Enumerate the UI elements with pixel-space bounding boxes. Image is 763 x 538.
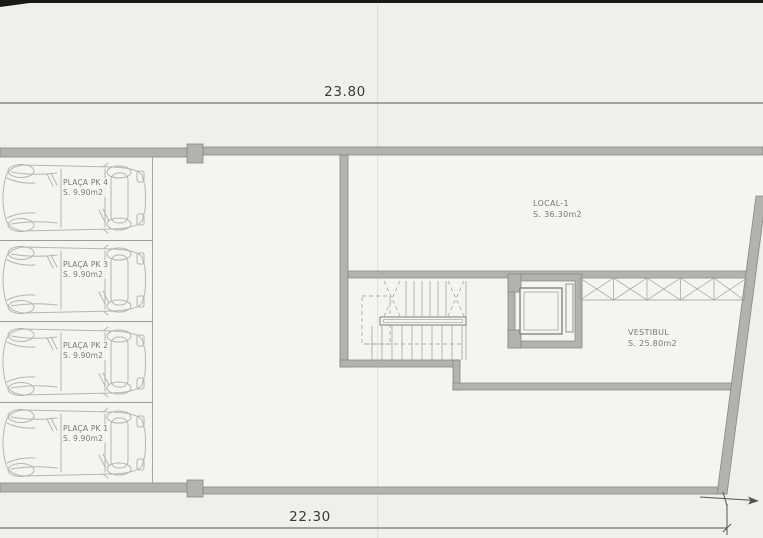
elevator-jamb-bottom bbox=[508, 330, 521, 348]
partition-wall bbox=[340, 155, 348, 367]
stall-name: PLAÇA PK 3 bbox=[63, 260, 108, 270]
floor-plan-drawing bbox=[0, 0, 763, 538]
parking-stall-label-pk3: PLAÇA PK 3 S. 9.90m2 bbox=[62, 260, 109, 279]
top-wall-right bbox=[203, 147, 763, 155]
stall-area: S. 9.90m2 bbox=[63, 188, 108, 198]
elevator-door-slot bbox=[566, 284, 573, 332]
stall-name: PLAÇA PK 1 bbox=[63, 424, 108, 434]
room-label-vestibul: VESTIBUL S. 25.80m2 bbox=[628, 328, 677, 349]
stall-name: PLAÇA PK 4 bbox=[63, 178, 108, 188]
room-name: LOCAL-1 bbox=[533, 199, 582, 210]
stair-south-wall bbox=[340, 360, 460, 367]
parking-stall-label-pk1: PLAÇA PK 1 S. 9.90m2 bbox=[62, 424, 109, 443]
bottom-wall-column bbox=[187, 480, 203, 497]
top-wall-column bbox=[187, 144, 203, 163]
vestibule-south-wall bbox=[453, 383, 732, 390]
dimension-top-label: 23.80 bbox=[280, 84, 410, 100]
top-wall-left bbox=[0, 148, 188, 157]
room-name: VESTIBUL bbox=[628, 328, 677, 339]
stair-handrail bbox=[380, 317, 466, 325]
elevator-jamb-top bbox=[508, 274, 521, 292]
dimension-bottom-label: 22.30 bbox=[250, 509, 370, 525]
bottom-wall-left bbox=[0, 483, 188, 492]
stall-area: S. 9.90m2 bbox=[63, 351, 108, 361]
bottom-wall-right bbox=[203, 487, 727, 494]
floor-plan-sheet: 23.80 PLAÇA PK 4 S. 9.90m2 PLAÇA PK 3 S.… bbox=[0, 0, 763, 538]
room-area: S. 36.30m2 bbox=[533, 210, 582, 221]
stall-area: S. 9.90m2 bbox=[63, 270, 108, 280]
room-label-local-1: LOCAL-1 S. 36.30m2 bbox=[533, 199, 582, 220]
parking-stall-label-pk2: PLAÇA PK 2 S. 9.90m2 bbox=[62, 341, 109, 360]
room-area: S. 25.80m2 bbox=[628, 339, 677, 350]
stall-area: S. 9.90m2 bbox=[63, 434, 108, 444]
stall-name: PLAÇA PK 2 bbox=[63, 341, 108, 351]
dimension-bottom-line bbox=[0, 492, 759, 535]
parking-stall-label-pk4: PLAÇA PK 4 S. 9.90m2 bbox=[62, 178, 109, 197]
elevator-car bbox=[520, 288, 562, 334]
